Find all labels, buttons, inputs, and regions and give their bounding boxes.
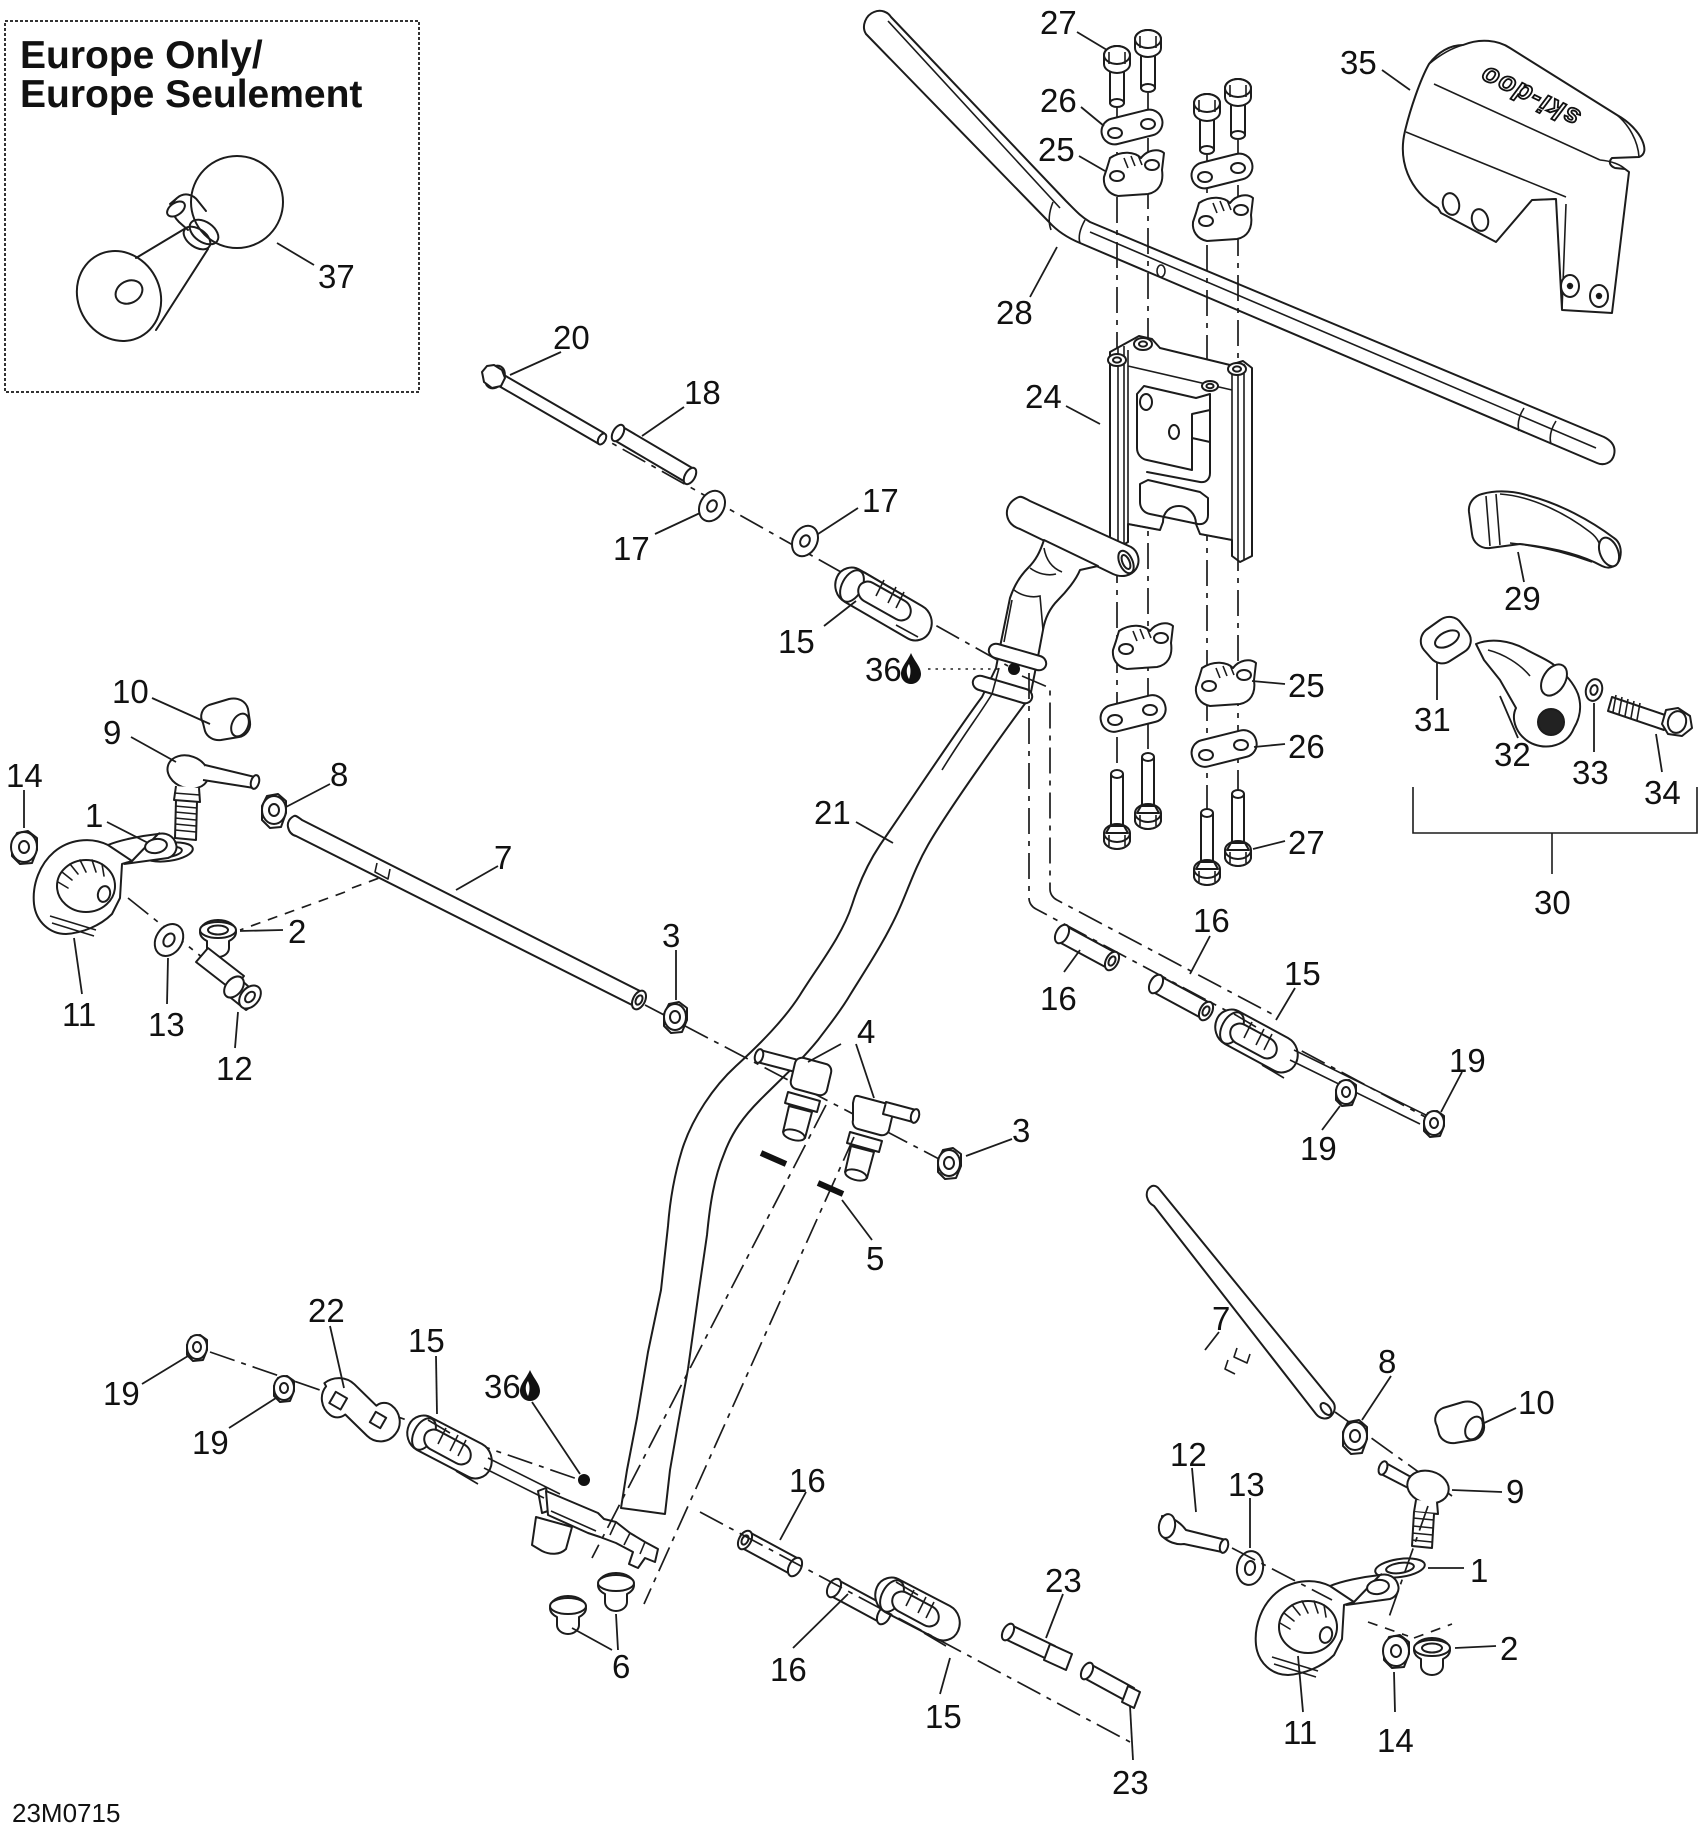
svg-text:9: 9 [103, 714, 121, 751]
svg-text:5: 5 [866, 1240, 884, 1277]
svg-text:14: 14 [6, 757, 43, 794]
svg-text:27: 27 [1288, 824, 1325, 861]
svg-text:34: 34 [1644, 774, 1681, 811]
svg-text:29: 29 [1504, 580, 1541, 617]
svg-text:Europe Seulement: Europe Seulement [20, 73, 362, 116]
svg-text:13: 13 [1228, 1466, 1265, 1503]
svg-text:11: 11 [62, 996, 96, 1033]
svg-text:19: 19 [103, 1375, 140, 1412]
svg-text:32: 32 [1494, 736, 1531, 773]
svg-text:8: 8 [330, 756, 348, 793]
svg-text:7: 7 [1212, 1300, 1230, 1337]
svg-text:18: 18 [684, 374, 721, 411]
svg-text:12: 12 [1170, 1436, 1207, 1473]
svg-text:27: 27 [1040, 4, 1077, 41]
svg-text:30: 30 [1534, 884, 1571, 921]
svg-text:10: 10 [1518, 1384, 1555, 1421]
svg-text:35: 35 [1340, 44, 1377, 81]
svg-text:6: 6 [612, 1648, 630, 1685]
svg-text:20: 20 [553, 319, 590, 356]
svg-text:16: 16 [770, 1651, 807, 1688]
svg-text:23M0715: 23M0715 [12, 1798, 120, 1828]
svg-text:25: 25 [1288, 667, 1325, 704]
svg-text:26: 26 [1288, 728, 1325, 765]
svg-text:31: 31 [1414, 701, 1451, 738]
svg-text:25: 25 [1038, 131, 1075, 168]
svg-text:10: 10 [112, 673, 149, 710]
svg-text:19: 19 [1300, 1130, 1337, 1167]
svg-text:15: 15 [408, 1322, 445, 1359]
svg-text:11: 11 [1283, 1714, 1317, 1751]
svg-text:33: 33 [1572, 754, 1609, 791]
svg-text:17: 17 [613, 530, 650, 567]
svg-text:15: 15 [1284, 955, 1321, 992]
svg-text:4: 4 [857, 1013, 875, 1050]
svg-text:21: 21 [814, 794, 851, 831]
svg-text:26: 26 [1040, 82, 1077, 119]
svg-text:8: 8 [1378, 1343, 1396, 1380]
svg-text:28: 28 [996, 294, 1033, 331]
svg-text:3: 3 [662, 917, 680, 954]
svg-text:16: 16 [789, 1462, 826, 1499]
svg-text:7: 7 [494, 839, 512, 876]
svg-text:17: 17 [862, 482, 899, 519]
svg-text:1: 1 [1470, 1552, 1488, 1589]
svg-text:37: 37 [318, 258, 355, 295]
svg-text:36: 36 [484, 1368, 521, 1405]
svg-text:2: 2 [288, 913, 306, 950]
svg-text:19: 19 [192, 1424, 229, 1461]
svg-text:13: 13 [148, 1006, 185, 1043]
svg-text:3: 3 [1012, 1112, 1030, 1149]
svg-text:12: 12 [216, 1050, 253, 1087]
svg-text:23: 23 [1112, 1764, 1149, 1801]
svg-text:14: 14 [1377, 1722, 1414, 1759]
svg-text:1: 1 [85, 797, 103, 834]
svg-text:2: 2 [1500, 1630, 1518, 1667]
svg-text:16: 16 [1040, 980, 1077, 1017]
svg-text:Europe Only/: Europe Only/ [20, 34, 263, 77]
svg-text:24: 24 [1025, 378, 1062, 415]
svg-text:9: 9 [1506, 1473, 1524, 1510]
svg-text:19: 19 [1449, 1042, 1486, 1079]
svg-text:15: 15 [778, 623, 815, 660]
svg-text:23: 23 [1045, 1562, 1082, 1599]
svg-text:36: 36 [865, 651, 902, 688]
svg-text:15: 15 [925, 1698, 962, 1735]
svg-text:22: 22 [308, 1292, 345, 1329]
svg-text:16: 16 [1193, 902, 1230, 939]
